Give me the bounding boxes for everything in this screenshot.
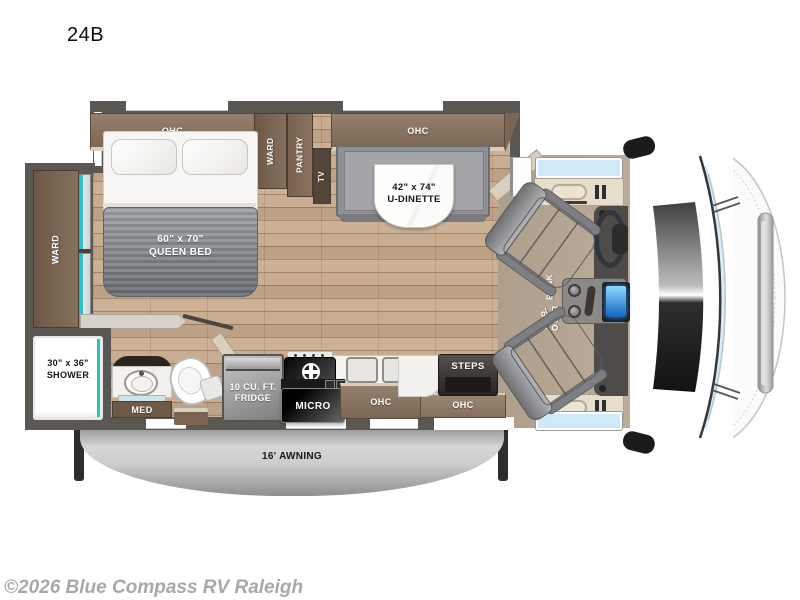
fridge-label-line1: 10 CU. FT. xyxy=(224,382,282,393)
shower-accent xyxy=(97,339,100,417)
shower: 30" x 36" SHOWER xyxy=(33,336,103,420)
shower-name-label: SHOWER xyxy=(33,370,103,382)
pantry-label: PANTRY xyxy=(287,113,313,197)
side-mirror-icon xyxy=(621,429,657,455)
bed-size-label: 60" x 70" xyxy=(104,234,257,247)
sink-basin xyxy=(131,376,153,392)
bed-mattress: 60" x 70" QUEEN BED xyxy=(103,207,258,297)
ward-side-label: WARD xyxy=(33,170,79,328)
med-label: MED xyxy=(112,405,172,416)
dinette-table: 42" x 74" U-DINETTE xyxy=(374,164,454,228)
bed-name-label: QUEEN BED xyxy=(104,247,257,260)
dinette-size-label: 42" x 74" xyxy=(375,182,453,194)
page-title: 24B xyxy=(67,24,104,47)
steps-landing xyxy=(398,355,442,397)
side-mirror-icon xyxy=(621,134,657,160)
ward-mirror-divider xyxy=(79,249,91,253)
cab-door-top-window xyxy=(536,158,622,178)
window-dinette-top xyxy=(343,101,443,111)
ohc-kitchen-label: OHC xyxy=(340,397,422,408)
floorplan-image: 24B 16' AWNING OHC WARD PANTRY TV OHC 60… xyxy=(0,0,800,600)
console-knob-icon xyxy=(568,284,581,297)
kitchen-sink-left xyxy=(346,357,378,383)
awning-label: 16' AWNING xyxy=(80,450,504,463)
windshield xyxy=(653,202,703,392)
ward-mirror-top xyxy=(79,174,91,250)
fridge-label-line2: FRIDGE xyxy=(224,393,282,404)
fridge: 10 CU. FT. FRIDGE xyxy=(222,354,284,422)
pillow-left xyxy=(111,139,177,175)
sink-faucet-icon xyxy=(139,371,144,376)
cab-door-bottom-window xyxy=(536,412,622,430)
window-bedroom-top xyxy=(126,101,228,111)
bath-divider-wall xyxy=(80,314,186,329)
gear-lever-icon xyxy=(584,286,596,317)
window-entry-bottom xyxy=(370,419,418,429)
tv-label: TV xyxy=(313,148,331,204)
ohc-dinette-label: OHC xyxy=(331,126,505,137)
toilet-mat xyxy=(174,408,208,425)
steps-label: STEPS xyxy=(438,361,498,373)
ward-top-label: WARD xyxy=(254,113,287,189)
front-bumper xyxy=(758,213,773,393)
shower-size-label: 30" x 36" xyxy=(33,358,103,370)
dinette-name-label: U-DINETTE xyxy=(375,194,453,206)
pillow-right xyxy=(182,139,248,175)
ohc-entry-label: OHC xyxy=(420,400,506,411)
cab-front xyxy=(615,128,795,468)
entry-landing xyxy=(434,417,514,430)
awning: 16' AWNING xyxy=(80,426,504,496)
microwave-label: MICRO xyxy=(281,401,345,414)
copyright: ©2026 Blue Compass RV Raleigh xyxy=(4,577,303,599)
